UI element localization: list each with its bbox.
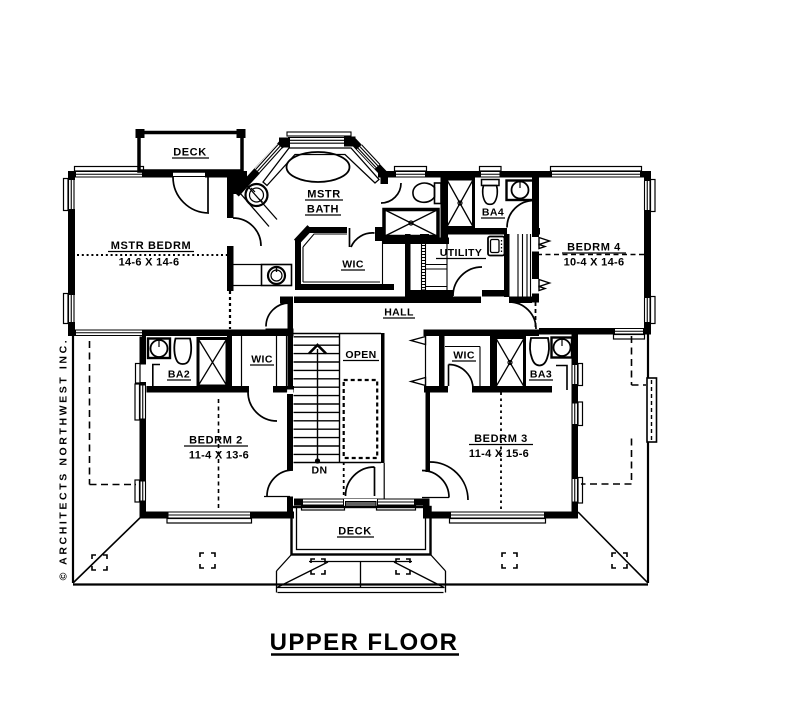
svg-text:BATH: BATH [307,204,339,216]
svg-text:11-4 X 15-6: 11-4 X 15-6 [469,448,529,460]
svg-text:MSTR BEDRM: MSTR BEDRM [111,240,192,252]
svg-text:MSTR: MSTR [307,189,341,201]
svg-text:WIC: WIC [251,354,273,366]
svg-text:BEDRM 3: BEDRM 3 [474,433,528,445]
svg-text:OPEN: OPEN [345,349,376,361]
svg-text:BA3: BA3 [530,369,552,381]
svg-text:HALL: HALL [384,307,414,319]
svg-text:DN: DN [312,465,328,477]
svg-text:BEDRM 4: BEDRM 4 [567,242,621,254]
svg-text:BA4: BA4 [482,207,504,219]
svg-text:© ARCHITECTS NORTHWEST INC.: © ARCHITECTS NORTHWEST INC. [58,338,70,581]
svg-text:UTILITY: UTILITY [440,247,482,259]
svg-text:WIC: WIC [342,259,364,271]
svg-text:14-6 X 14-6: 14-6 X 14-6 [119,257,180,269]
svg-text:BA2: BA2 [168,369,190,381]
svg-text:10-4 X 14-6: 10-4 X 14-6 [564,257,625,269]
svg-text:BEDRM 2: BEDRM 2 [189,435,243,447]
svg-text:WIC: WIC [453,350,475,362]
svg-text:UPPER FLOOR: UPPER FLOOR [270,629,459,656]
svg-text:DECK: DECK [173,147,207,159]
svg-text:11-4 X 13-6: 11-4 X 13-6 [189,450,249,462]
svg-text:DECK: DECK [338,526,372,538]
